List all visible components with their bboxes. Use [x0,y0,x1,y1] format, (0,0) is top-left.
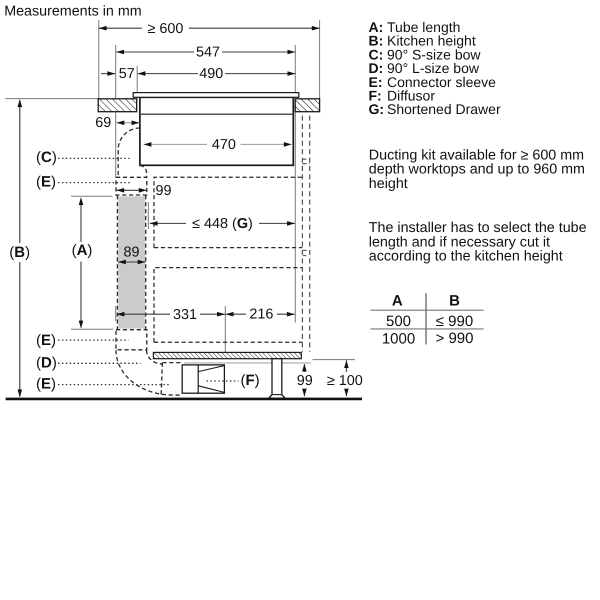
svg-text:500: 500 [386,313,411,330]
svg-text:> 990: > 990 [436,330,474,347]
svg-text:(E): (E) [36,375,56,392]
svg-text:99: 99 [156,183,172,199]
svg-text:470: 470 [212,137,236,153]
svg-text:≥ 600: ≥ 600 [148,21,184,37]
svg-text:(E): (E) [36,332,56,349]
svg-text:216: 216 [249,307,273,323]
svg-text:89: 89 [123,244,139,260]
svg-text:490: 490 [199,66,223,82]
svg-text:Measurements in mm: Measurements in mm [4,3,141,19]
svg-text:69: 69 [95,115,111,131]
svg-text:A: A [392,293,403,310]
svg-text:547: 547 [196,45,220,61]
svg-text:57: 57 [119,66,135,82]
svg-text:G:: G: [369,101,385,117]
svg-text:according to the kitchen heigh: according to the kitchen height [369,249,563,265]
svg-text:≤ 448 (G): ≤ 448 (G) [192,216,253,232]
svg-text:331: 331 [173,307,197,323]
svg-text:1000: 1000 [382,330,415,347]
svg-text:height: height [369,176,408,192]
svg-text:(B): (B) [9,244,30,261]
svg-text:Shortened Drawer: Shortened Drawer [387,101,501,117]
svg-text:(E): (E) [36,174,56,191]
svg-text:99: 99 [297,373,313,389]
svg-text:(D): (D) [36,354,57,371]
svg-text:≤ 990: ≤ 990 [436,313,473,330]
svg-text:≥ 100: ≥ 100 [327,373,363,389]
svg-text:(C): (C) [36,149,57,166]
svg-text:B: B [449,293,460,310]
svg-text:(A): (A) [72,242,93,259]
svg-text:(F): (F) [241,372,260,389]
